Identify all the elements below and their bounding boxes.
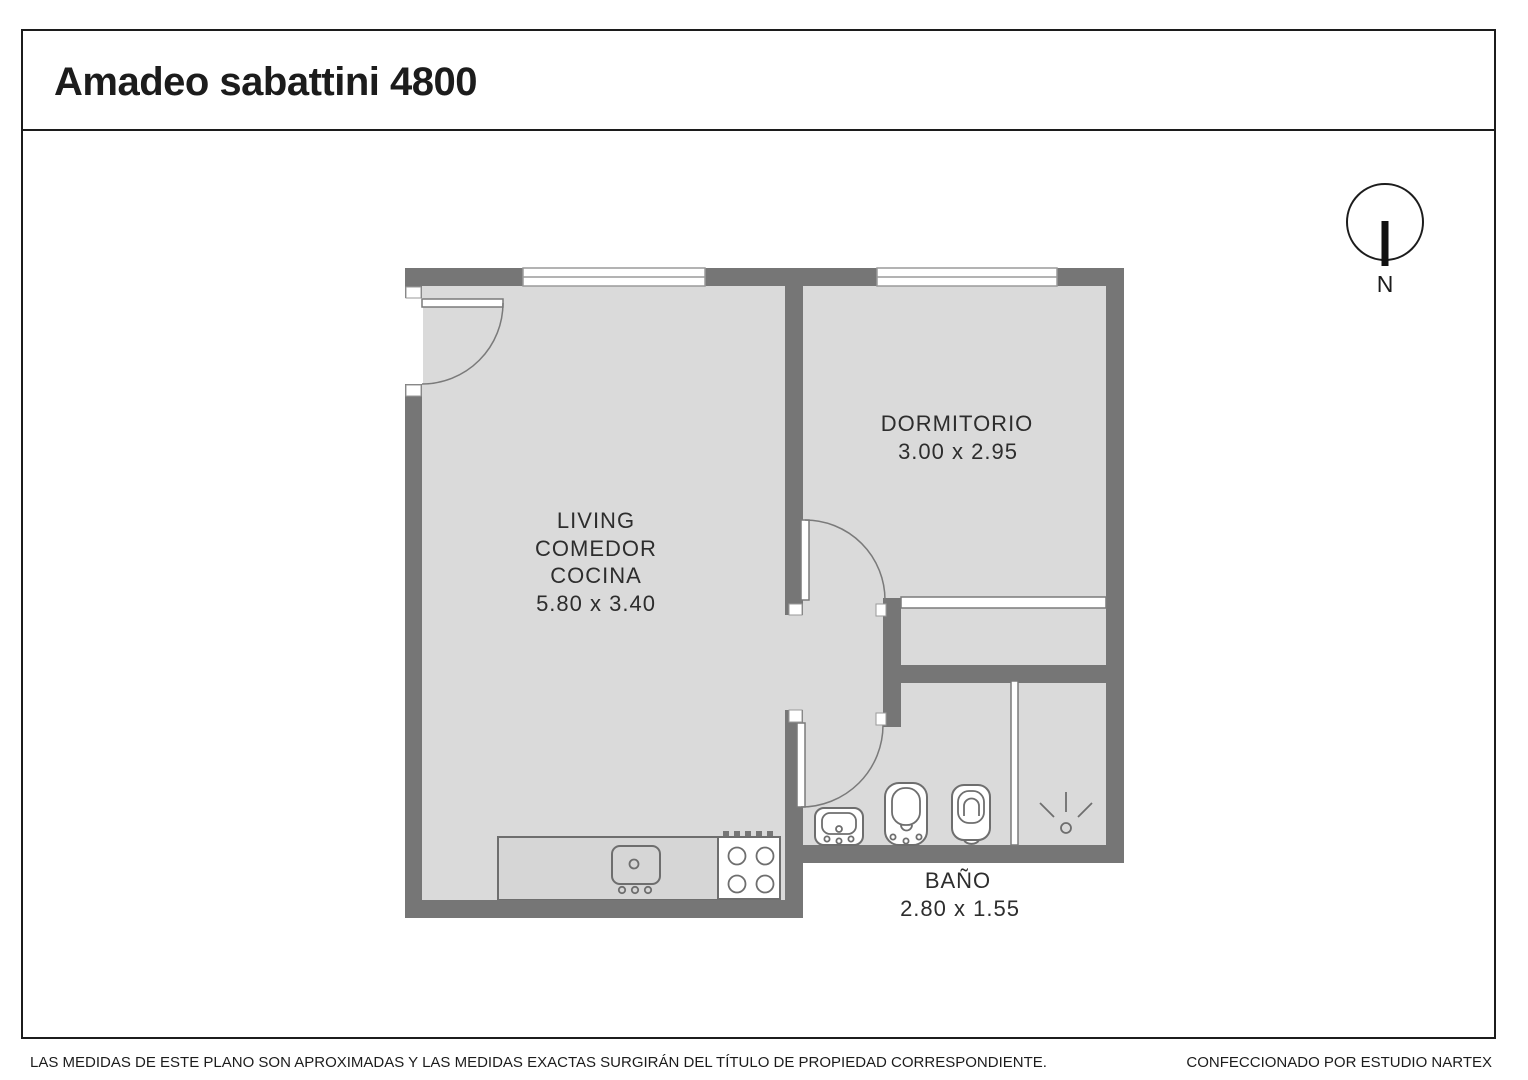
bedroom-door-leaf	[801, 520, 809, 600]
dormitorio-name: DORMITORIO	[881, 411, 1034, 436]
entry-doorway-gap	[404, 298, 423, 384]
bano-label: BAÑO 2.80 x 1.55	[900, 868, 1020, 921]
north-needle-icon	[1382, 221, 1389, 266]
footer: LAS MEDIDAS DE ESTE PLANO SON APROXIMADA…	[30, 1054, 1492, 1071]
wall-closet-bottom	[883, 665, 1124, 683]
living-dimensions: 5.80 x 3.40	[536, 591, 656, 616]
hall-opening-floor	[785, 615, 803, 710]
living-line-2: COMEDOR	[535, 536, 657, 561]
bath-sink-icon	[815, 808, 863, 845]
footer-disclaimer: LAS MEDIDAS DE ESTE PLANO SON APROXIMADA…	[30, 1054, 1047, 1071]
right-side-floor	[803, 285, 1106, 847]
kitchen-counter	[498, 831, 780, 900]
bano-dimensions: 2.80 x 1.55	[900, 896, 1020, 921]
wall-bath-bottom	[793, 845, 1124, 863]
window-dormitorio	[877, 268, 1057, 286]
wall-stub-hall	[883, 598, 901, 727]
footer-credit: CONFECCIONADO POR ESTUDIO NARTEX	[1186, 1054, 1492, 1071]
window-living	[523, 268, 705, 286]
wall-right	[1106, 268, 1124, 863]
bidet-icon	[885, 783, 927, 845]
entry-door-leaf	[422, 299, 503, 307]
shower-partition	[1011, 681, 1018, 845]
stove-icon	[718, 831, 780, 899]
living-line-3: COCINA	[550, 563, 642, 588]
bano-name: BAÑO	[925, 868, 991, 893]
living-line-1: LIVING	[557, 508, 635, 533]
compass: N	[1347, 184, 1423, 297]
dormitorio-dimensions: 3.00 x 2.95	[898, 439, 1018, 464]
toilet-icon	[952, 785, 990, 844]
floor-plan-canvas: Amadeo sabattini 4800	[0, 0, 1528, 1080]
floor-plan-page: Amadeo sabattini 4800	[0, 0, 1528, 1080]
wall-living-bottom	[405, 900, 803, 918]
floors	[422, 285, 1106, 902]
bathroom-door-leaf	[797, 723, 805, 807]
page-title: Amadeo sabattini 4800	[54, 60, 477, 104]
closet-front	[901, 597, 1106, 608]
north-label: N	[1377, 271, 1394, 297]
